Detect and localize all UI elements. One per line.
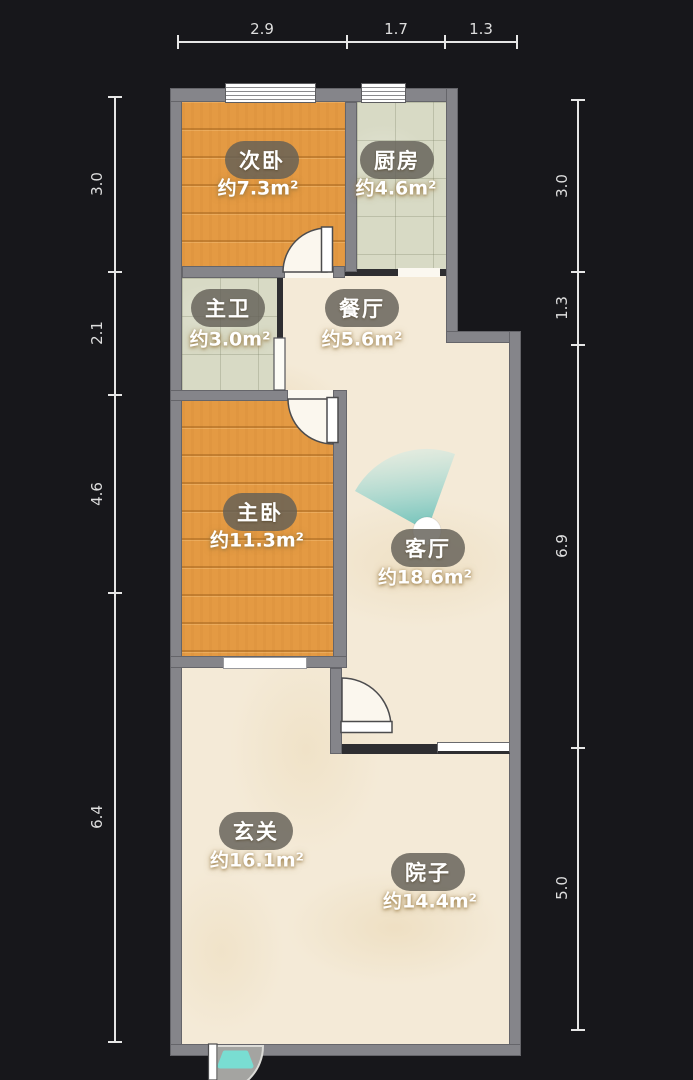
dimension-tick xyxy=(177,35,179,49)
dimension-tick xyxy=(108,1041,122,1043)
dimension-tick xyxy=(571,1029,585,1031)
room-area-dining: 约5.6m² xyxy=(322,325,403,352)
secondary-bedroom-door-swing xyxy=(283,228,327,272)
master-bath-door-leaf xyxy=(274,338,285,390)
room-area-living: 约18.6m² xyxy=(378,563,472,590)
dimension-tick xyxy=(571,747,585,749)
dimension-tick xyxy=(571,271,585,273)
dimension-tick xyxy=(346,35,348,49)
secondary-bedroom-door-leaf xyxy=(322,227,333,272)
entrance-step-icon xyxy=(220,1053,251,1066)
dimension-label-top-3: 1.3 xyxy=(469,20,493,38)
room-area-kitchen: 约4.6m² xyxy=(356,174,437,201)
dimension-label-top-1: 2.9 xyxy=(250,20,274,38)
room-area-master-bath: 约3.0m² xyxy=(190,325,271,352)
dimension-tick xyxy=(108,96,122,98)
dimension-label-left-2: 2.1 xyxy=(88,321,106,345)
room-label-yard: 院子 xyxy=(391,853,465,891)
doors-and-viewcone-layer xyxy=(0,0,693,1080)
room-area-secondary-bedroom: 约7.3m² xyxy=(218,174,299,201)
room-label-master-bath: 主卫 xyxy=(191,289,265,327)
dimension-line-right xyxy=(577,100,579,1030)
dimension-tick xyxy=(108,394,122,396)
dimension-tick xyxy=(571,99,585,101)
living-room-door-leaf xyxy=(341,722,392,733)
dimension-line-left xyxy=(114,97,116,1042)
viewpoint-cone-icon[interactable] xyxy=(355,449,455,531)
dimension-label-right-3: 6.9 xyxy=(553,534,571,558)
living-room-door-swing xyxy=(342,678,391,727)
dimension-label-right-2: 1.3 xyxy=(553,296,571,320)
dimension-label-right-4: 5.0 xyxy=(553,876,571,900)
dimension-tick xyxy=(444,35,446,49)
floor-plan-canvas: 次卧 约7.3m² 厨房 约4.6m² 主卫 约3.0m² 餐厅 约5.6m² … xyxy=(0,0,693,1080)
dimension-label-top-2: 1.7 xyxy=(384,20,408,38)
room-area-yard: 约14.4m² xyxy=(383,887,477,914)
dimension-label-right-1: 3.0 xyxy=(553,174,571,198)
dimension-tick xyxy=(571,344,585,346)
room-label-entry: 玄关 xyxy=(219,812,293,850)
dimension-label-left-4: 6.4 xyxy=(88,805,106,829)
dimension-label-left-3: 4.6 xyxy=(88,482,106,506)
room-area-master-bedroom: 约11.3m² xyxy=(210,526,304,553)
master-bedroom-door-leaf xyxy=(327,398,338,443)
dimension-label-left-1: 3.0 xyxy=(88,172,106,196)
dimension-tick xyxy=(108,271,122,273)
entrance-door-leaf xyxy=(209,1044,218,1080)
room-area-entry: 约16.1m² xyxy=(210,846,304,873)
room-label-dining: 餐厅 xyxy=(325,289,399,327)
room-label-living: 客厅 xyxy=(391,529,465,567)
dimension-tick xyxy=(108,592,122,594)
dimension-tick xyxy=(516,35,518,49)
